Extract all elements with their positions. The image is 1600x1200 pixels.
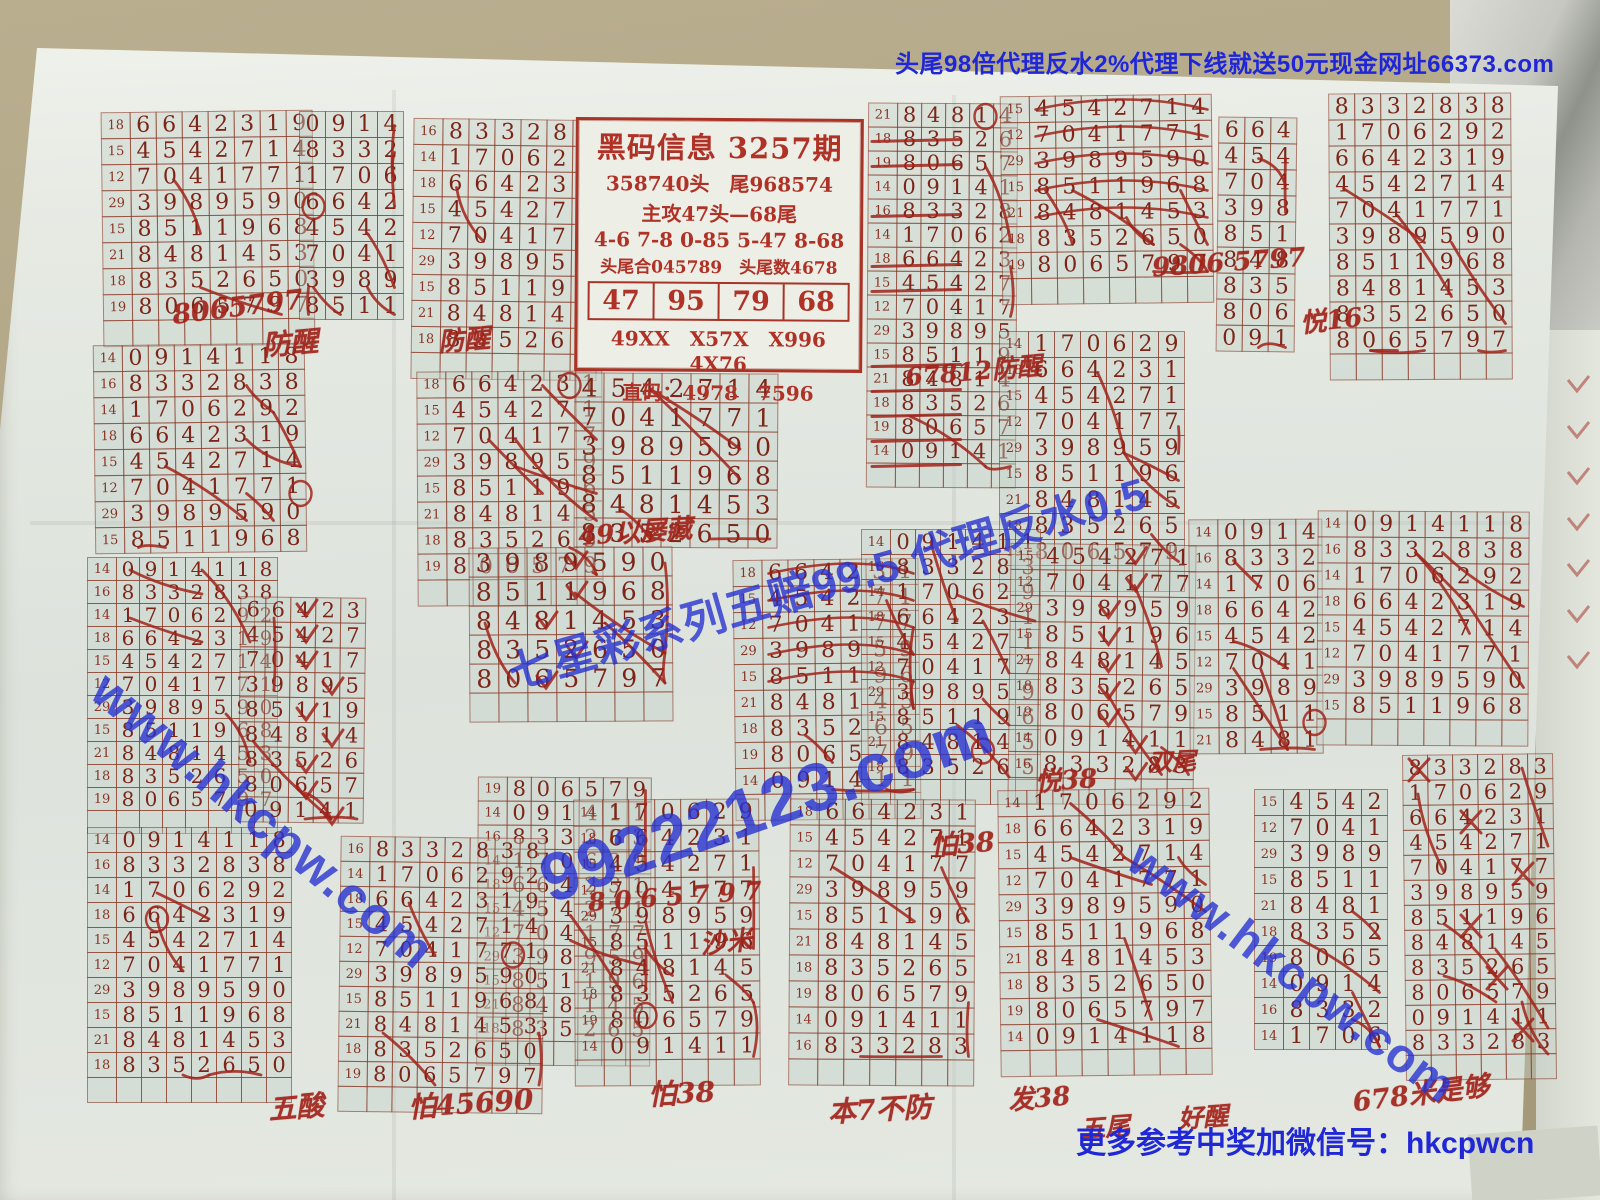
pen-stroke bbox=[1071, 858, 1152, 885]
under-sheet-mark bbox=[1568, 468, 1589, 483]
pen-stroke bbox=[571, 916, 621, 991]
pen-stroke bbox=[931, 543, 957, 621]
under-sheet-mark bbox=[1568, 422, 1589, 437]
under-sheet-mark bbox=[1568, 376, 1589, 391]
pen-stroke bbox=[834, 868, 915, 922]
pen-circle bbox=[502, 943, 524, 968]
pen-stroke bbox=[593, 573, 596, 575]
pen-stroke bbox=[1125, 939, 1152, 1020]
info-main-attack: 主攻47头—68尾 bbox=[578, 197, 860, 228]
pen-stroke bbox=[887, 601, 914, 655]
pen-stroke bbox=[308, 288, 309, 315]
pen-stroke bbox=[166, 467, 247, 521]
pen-stroke bbox=[1071, 804, 1125, 858]
pen-stroke bbox=[872, 215, 961, 217]
pen-stroke bbox=[157, 919, 183, 971]
pen-stroke bbox=[620, 509, 650, 539]
pen-stroke bbox=[957, 595, 1035, 621]
pen-stroke bbox=[323, 678, 343, 694]
pen-stroke bbox=[1418, 794, 1444, 872]
pen-stroke bbox=[274, 413, 301, 467]
info-heads-tails: 358740头 尾968574 bbox=[578, 167, 860, 198]
photo-stage: 1866423191545427141270417712939895901585… bbox=[0, 0, 1600, 1200]
pen-stroke bbox=[1179, 858, 1206, 885]
pen-stroke bbox=[754, 1003, 758, 1057]
pen-stroke bbox=[226, 714, 250, 762]
pen-stroke bbox=[570, 548, 597, 575]
pen-stroke bbox=[1154, 272, 1208, 273]
pen-stroke bbox=[1100, 656, 1120, 672]
pen-stroke bbox=[457, 188, 484, 242]
pen-stroke bbox=[1036, 154, 1208, 164]
pen-stroke bbox=[1036, 127, 1208, 137]
pen-stroke bbox=[247, 386, 274, 413]
pen-stroke bbox=[1036, 181, 1208, 191]
pen-stroke bbox=[1416, 553, 1470, 607]
pen-stroke bbox=[571, 941, 646, 966]
pen-stroke bbox=[157, 893, 209, 919]
pen-stroke bbox=[409, 903, 435, 955]
pen-stroke bbox=[567, 582, 587, 598]
pen-stroke bbox=[537, 672, 557, 688]
pen-stroke bbox=[1098, 1020, 1179, 1047]
pen-stroke bbox=[1125, 858, 1206, 912]
pen-stroke bbox=[537, 612, 557, 628]
pen-stroke bbox=[1416, 553, 1470, 634]
boxed-number: 68 bbox=[782, 284, 847, 319]
boxed-number: 47 bbox=[589, 283, 652, 318]
pen-stroke bbox=[663, 653, 665, 683]
pen-stroke bbox=[1011, 267, 1014, 317]
pen-stroke bbox=[872, 165, 961, 167]
pen-stroke bbox=[872, 465, 961, 467]
pen-stroke bbox=[575, 593, 665, 653]
pen-stroke bbox=[1098, 373, 1125, 454]
pen-circle bbox=[290, 481, 312, 506]
pen-stroke bbox=[247, 494, 274, 521]
pen-stroke bbox=[769, 591, 914, 601]
pen-stroke bbox=[769, 564, 914, 574]
promo-banner-top: 头尾98倍代理反水2%代理下线就送50元现金网址66373.com bbox=[895, 44, 1554, 79]
pen-stroke bbox=[130, 618, 202, 642]
pen-stroke bbox=[485, 623, 515, 683]
pen-stroke bbox=[1522, 768, 1548, 846]
pen-stroke bbox=[1046, 191, 1073, 245]
pen-stroke bbox=[297, 704, 317, 720]
pen-stroke bbox=[297, 782, 317, 798]
under-sheet-mark bbox=[1568, 514, 1589, 529]
pen-stroke bbox=[1181, 245, 1208, 272]
pen-stroke bbox=[1487, 967, 1507, 989]
pen-stroke bbox=[1409, 759, 1429, 781]
pen-stroke bbox=[1127, 548, 1147, 564]
pen-stroke bbox=[1135, 586, 1162, 667]
pen-stroke bbox=[872, 415, 961, 417]
pen-stroke bbox=[872, 390, 961, 392]
pen-stroke bbox=[314, 288, 341, 315]
pen-stroke bbox=[1259, 159, 1286, 186]
pen-stroke bbox=[1470, 607, 1524, 688]
pen-stroke bbox=[567, 552, 587, 568]
pen-stroke bbox=[986, 467, 1011, 470]
pen-stroke bbox=[392, 126, 394, 207]
pen-stroke bbox=[1234, 669, 1288, 750]
pen-stroke bbox=[1036, 100, 1208, 110]
pen-stroke bbox=[1479, 351, 1506, 353]
pen-stroke bbox=[368, 234, 395, 288]
pen-stroke bbox=[1108, 694, 1162, 775]
pen-stroke bbox=[1443, 553, 1524, 607]
promo-banner-bottom: 更多参考中奖加微信号：hkcpwcn bbox=[1076, 1118, 1534, 1162]
pen-stroke bbox=[1162, 748, 1189, 775]
pen-stroke bbox=[1100, 710, 1120, 726]
pen-stroke bbox=[201, 288, 282, 315]
pen-stroke bbox=[942, 868, 969, 922]
info-direct-code: 直码：4978 7596 bbox=[577, 376, 859, 407]
pen-stroke bbox=[957, 725, 1009, 777]
pen-stroke bbox=[986, 167, 1011, 242]
pen-stroke bbox=[174, 180, 201, 234]
pen-stroke bbox=[1461, 915, 1481, 937]
pen-stroke bbox=[209, 1071, 261, 1075]
pen-stroke bbox=[727, 976, 754, 1003]
pen-stroke bbox=[646, 922, 673, 1003]
pen-stroke bbox=[1299, 939, 1380, 993]
pen-stroke bbox=[202, 570, 250, 642]
pen-stroke bbox=[1100, 629, 1120, 645]
pen-stroke bbox=[665, 563, 667, 653]
pen-stroke bbox=[297, 600, 317, 616]
pen-stroke bbox=[1513, 1019, 1533, 1041]
pen-stroke bbox=[1127, 575, 1147, 591]
pen-stroke bbox=[872, 140, 961, 142]
pen-stroke bbox=[383, 1033, 435, 1085]
boxed-number: 79 bbox=[717, 284, 782, 319]
under-sheet-mark bbox=[1568, 652, 1589, 667]
boxed-number: 95 bbox=[652, 284, 717, 319]
pen-circle bbox=[303, 194, 325, 219]
pen-stroke bbox=[1353, 1020, 1380, 1047]
info-title: 黑码信息 3257期 bbox=[579, 124, 861, 168]
pen-circle bbox=[972, 739, 994, 764]
pen-stroke bbox=[247, 440, 301, 467]
pen-stroke bbox=[297, 652, 317, 668]
pen-stroke bbox=[1100, 602, 1120, 618]
pen-stroke bbox=[1452, 243, 1506, 324]
pen-stroke bbox=[1261, 669, 1288, 750]
pen-stroke bbox=[1344, 189, 1425, 243]
pen-stroke bbox=[872, 265, 961, 267]
info-pairs: 4-6 7-8 0-85 5-47 8-68 bbox=[578, 227, 860, 253]
pen-stroke bbox=[567, 642, 587, 658]
pen-stroke bbox=[183, 1075, 209, 1078]
under-sheet-mark bbox=[1568, 560, 1589, 575]
pen-stroke bbox=[967, 1003, 968, 1057]
pen-stroke bbox=[1513, 863, 1533, 885]
pen-stroke bbox=[297, 756, 317, 772]
pen-stroke bbox=[872, 365, 961, 367]
pen-stroke bbox=[983, 699, 1009, 725]
info-boxed-numbers: 47 95 79 68 bbox=[587, 281, 849, 322]
info-sum: 头尾合045789 头尾数4678 bbox=[578, 252, 860, 279]
pen-circle bbox=[975, 104, 997, 129]
info-codes: 49XX X57X X996 4X76 bbox=[577, 322, 859, 377]
pen-stroke bbox=[297, 626, 317, 642]
info-box: 黑码信息 3257期 358740头 尾968574 主攻47头—68尾 4-6… bbox=[574, 117, 864, 373]
pen-circle bbox=[635, 1003, 657, 1028]
pen-stroke bbox=[769, 618, 914, 628]
pen-stroke bbox=[605, 623, 665, 683]
pen-stroke bbox=[872, 290, 961, 292]
pen-stroke bbox=[983, 621, 1009, 673]
under-sheet-mark bbox=[1568, 606, 1589, 621]
pen-stroke bbox=[806, 736, 833, 763]
pen-stroke bbox=[1234, 561, 1261, 588]
pen-stroke bbox=[1496, 950, 1548, 1028]
pen-stroke bbox=[1259, 344, 1286, 348]
pen-stroke bbox=[1127, 764, 1147, 780]
pen-stroke bbox=[539, 1033, 541, 1085]
pen-stroke bbox=[253, 741, 331, 819]
pen-circle bbox=[1304, 710, 1326, 735]
pen-stroke bbox=[1152, 535, 1179, 562]
pen-stroke bbox=[274, 618, 275, 690]
pen-stroke bbox=[139, 546, 166, 548]
pen-stroke bbox=[1179, 427, 1180, 454]
pen-stroke bbox=[130, 570, 202, 594]
pen-stroke bbox=[1125, 454, 1179, 508]
pen-stroke bbox=[769, 645, 914, 655]
pen-stroke bbox=[1353, 912, 1380, 939]
pen-stroke bbox=[769, 672, 914, 682]
pen-stroke bbox=[368, 288, 395, 315]
pen-stroke bbox=[1461, 811, 1481, 833]
pen-stroke bbox=[1100, 683, 1120, 699]
pen-stroke bbox=[1234, 642, 1288, 669]
pen-stroke bbox=[872, 440, 961, 442]
pen-stroke bbox=[323, 730, 343, 746]
